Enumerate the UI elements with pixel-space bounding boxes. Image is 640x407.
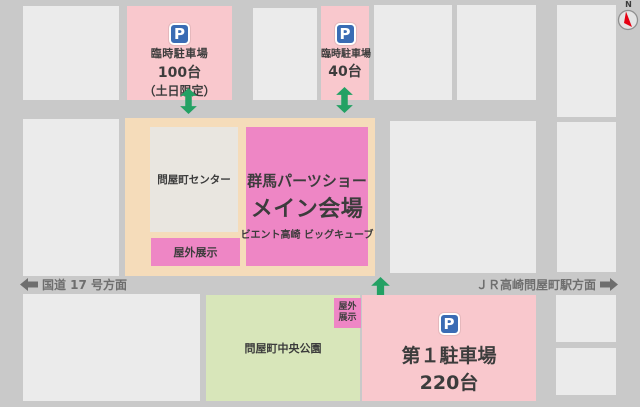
venue-title: 群馬パーツショー [247, 170, 367, 191]
city-block [557, 5, 616, 117]
outdoor-exhibit-label: 屋外展示 [174, 244, 218, 260]
road-direction-route17: 国道 17 号方面 [20, 276, 127, 292]
parking-capacity: 40台 [321, 61, 369, 81]
park-label: 問屋町中央公園 [245, 340, 322, 356]
city-block [253, 8, 317, 100]
temporary-parking-1: P 臨時駐車場 100台 （土日限定） [127, 6, 232, 100]
entrance-arrow-icon [335, 87, 354, 113]
parking-name: 臨時駐車場 [127, 45, 232, 61]
road-label: ＪＲ高崎問屋町駅方面 [476, 276, 596, 293]
venue-grounds: 問屋町センター 屋外展示 群馬パーツショー メイン会場 ビエント高崎 ビッグキュ… [125, 118, 375, 276]
building-label: 問屋町センター [157, 172, 231, 187]
outdoor-exhibit-area-side: 屋外 展示 [334, 298, 361, 328]
entrance-arrow-icon [179, 88, 198, 114]
city-block [556, 295, 616, 342]
arrow-right-icon [600, 278, 618, 291]
compass-icon: N [617, 0, 640, 30]
city-block [556, 348, 616, 395]
venue-subtitle: メイン会場 [251, 191, 364, 223]
outdoor-exhibit-area: 屋外展示 [151, 238, 240, 266]
parking-capacity: 100台 [127, 62, 232, 82]
parking-icon: P [439, 313, 460, 335]
main-venue: 群馬パーツショー メイン会場 ビエント高崎 ビッグキューブ [246, 127, 368, 266]
outdoor-exhibit-label: 展示 [338, 313, 356, 324]
main-parking-lot-1: P 第１駐車場 220台 [362, 295, 536, 401]
parking-icon: P [335, 23, 356, 45]
parking-icon: P [169, 23, 190, 45]
venue-access-map: P 臨時駐車場 100台 （土日限定） P 臨時駐車場 40台 問屋町センター … [0, 0, 640, 407]
city-block [390, 121, 536, 273]
road-direction-jr-station: ＪＲ高崎問屋町駅方面 [476, 276, 618, 292]
city-block [23, 6, 119, 100]
venue-location: ビエント高崎 ビッグキューブ [241, 226, 374, 241]
city-block [23, 294, 200, 401]
compass-north-label: N [617, 0, 640, 9]
tonyamachi-center-building: 問屋町センター [150, 127, 238, 232]
city-block [457, 5, 536, 100]
parking-name: 第１駐車場 [401, 341, 496, 368]
parking-name: 臨時駐車場 [321, 45, 369, 60]
temporary-parking-2: P 臨時駐車場 40台 [321, 6, 369, 100]
arrow-left-icon [20, 278, 38, 291]
city-block [374, 5, 452, 100]
parking-capacity: 220台 [420, 368, 479, 395]
city-block [23, 119, 119, 276]
road-label: 国道 17 号方面 [42, 276, 127, 293]
city-block [557, 122, 616, 272]
outdoor-exhibit-label: 屋外 [338, 302, 356, 313]
